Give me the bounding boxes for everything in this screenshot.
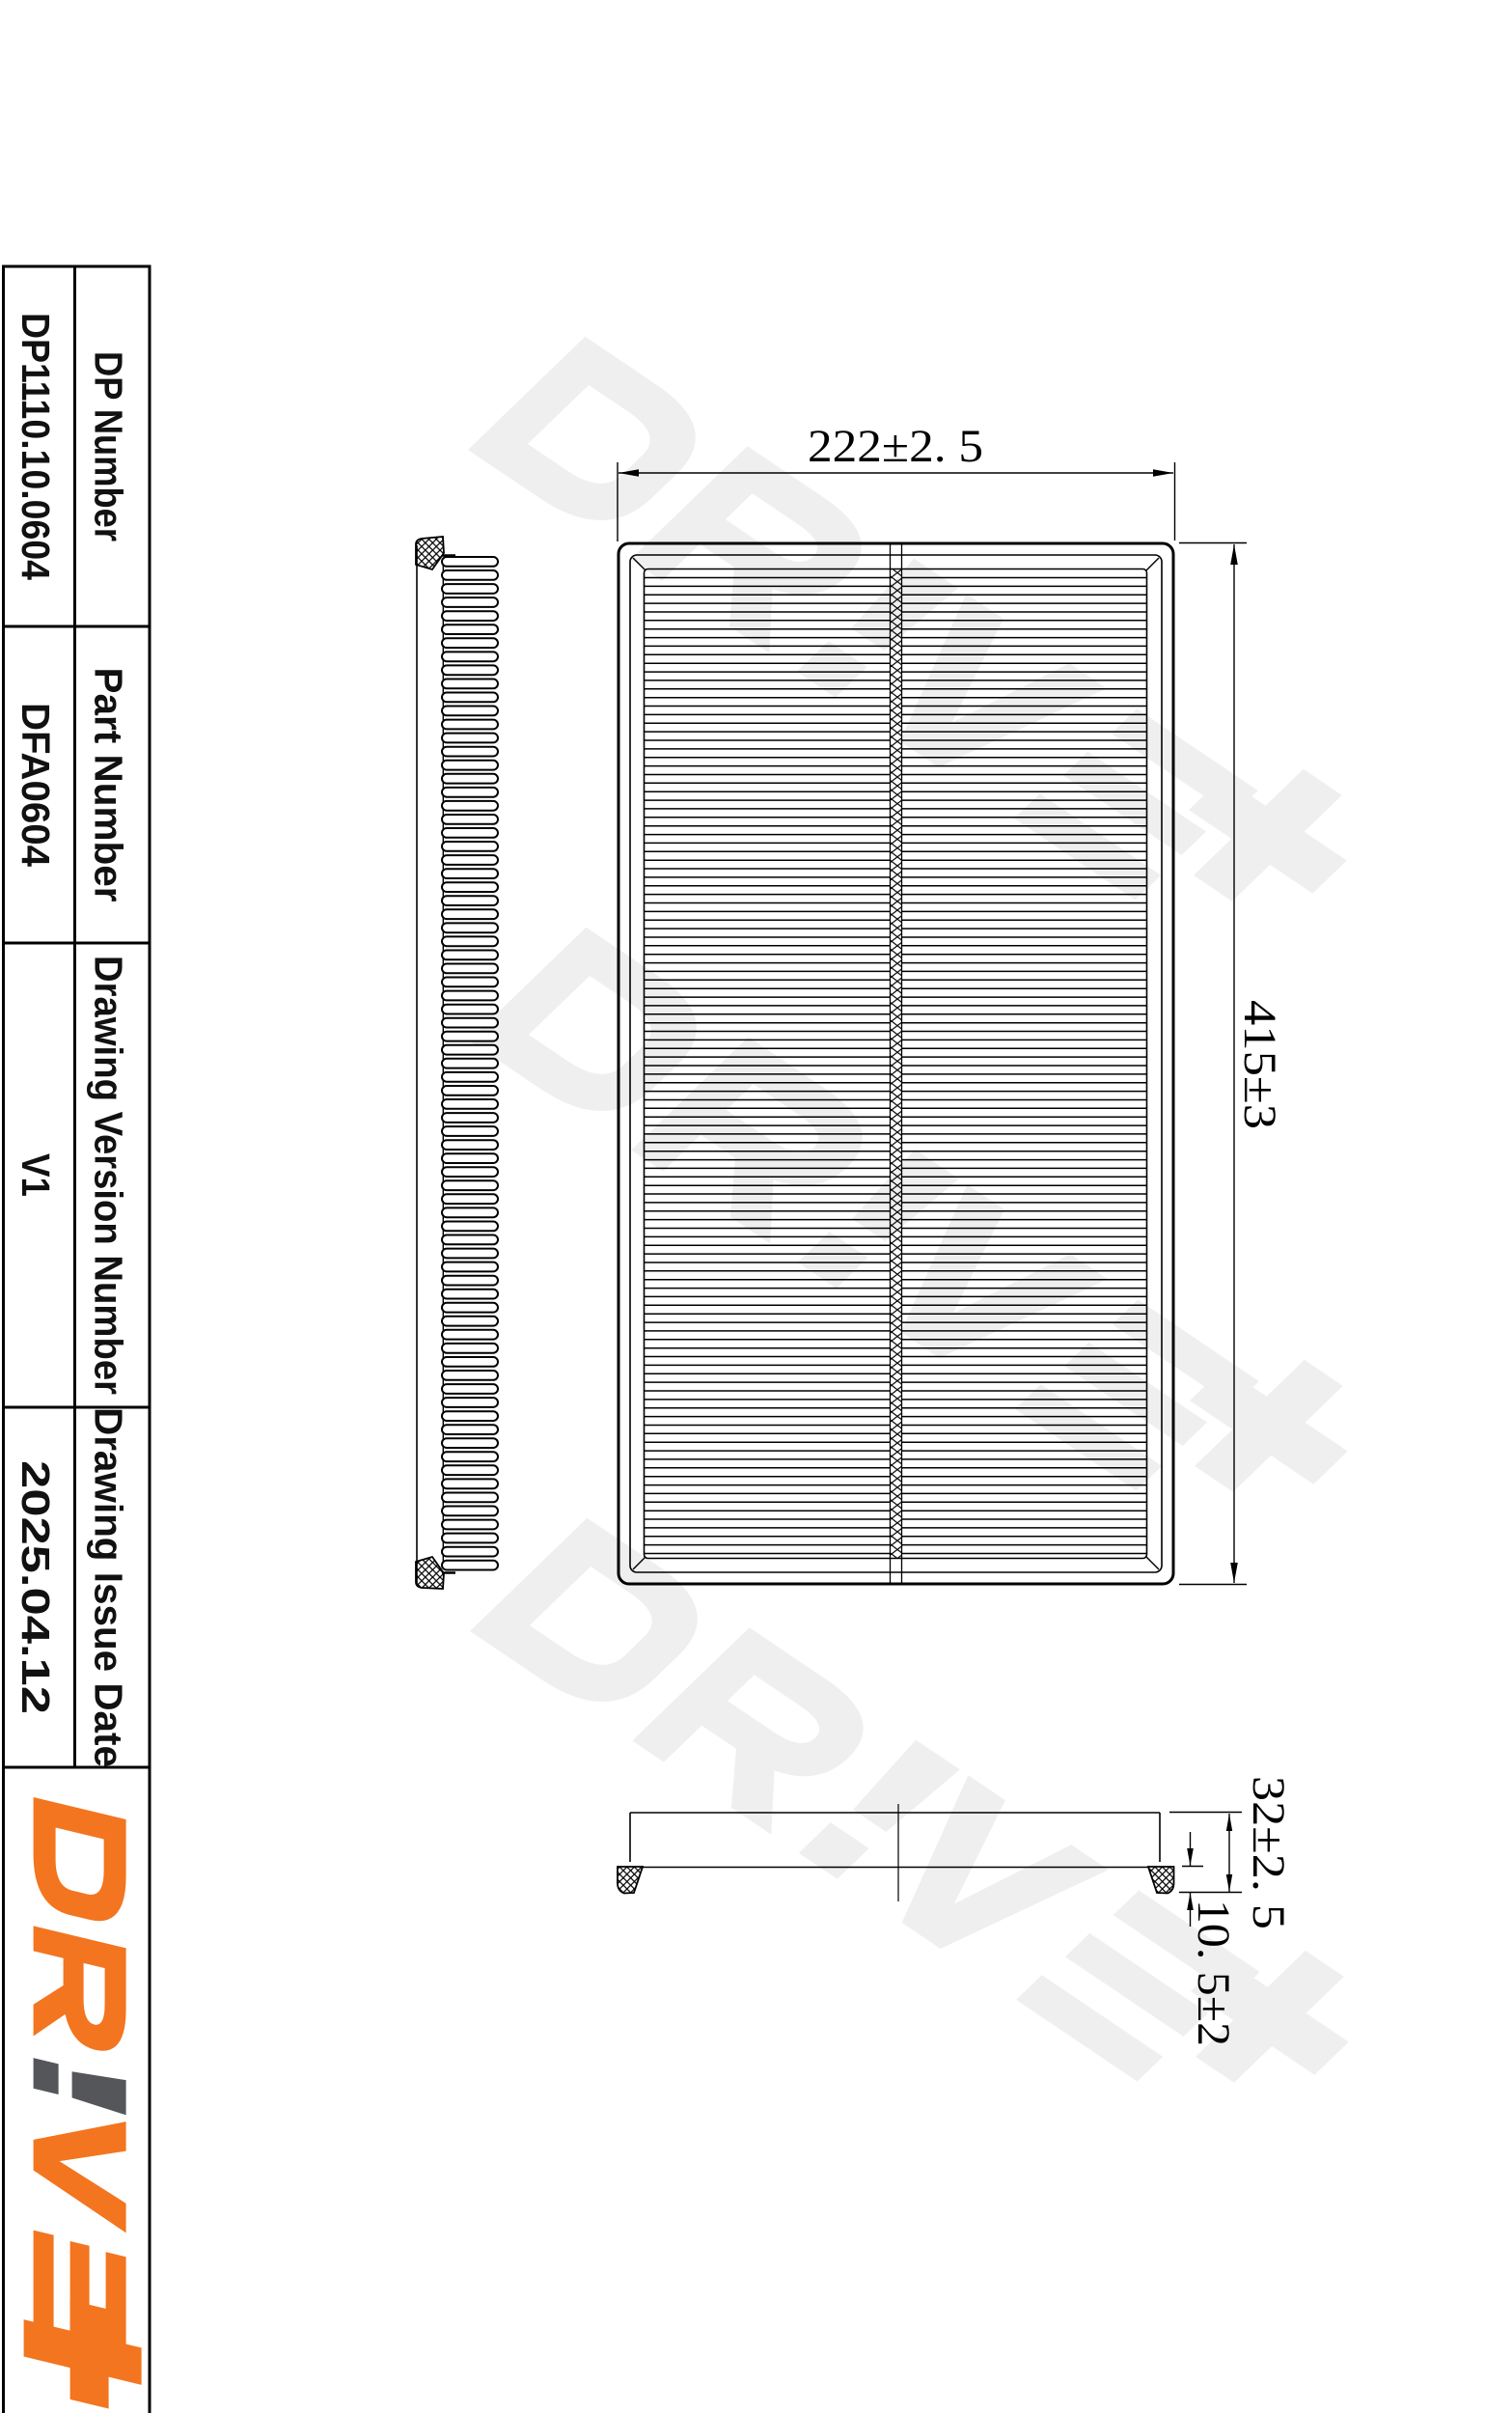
svg-text:415±3: 415±3 xyxy=(1234,1000,1285,1129)
svg-text:10. 5±2: 10. 5±2 xyxy=(1188,1900,1239,2046)
svg-text:Part Number: Part Number xyxy=(87,668,131,902)
svg-text:DP Number: DP Number xyxy=(87,351,131,541)
svg-text:Drawing Version Number: Drawing Version Number xyxy=(87,956,131,1395)
svg-text:DP1110.10.0604: DP1110.10.0604 xyxy=(14,313,58,580)
svg-text:32±2. 5: 32±2. 5 xyxy=(1243,1776,1294,1929)
svg-text:V1: V1 xyxy=(14,1153,58,1197)
svg-text:2025.04.12: 2025.04.12 xyxy=(14,1460,58,1714)
svg-text:222±2. 5: 222±2. 5 xyxy=(808,421,983,472)
svg-text:DFA0604: DFA0604 xyxy=(14,703,58,867)
svg-text:Drawing Issue Date: Drawing Issue Date xyxy=(87,1407,131,1767)
